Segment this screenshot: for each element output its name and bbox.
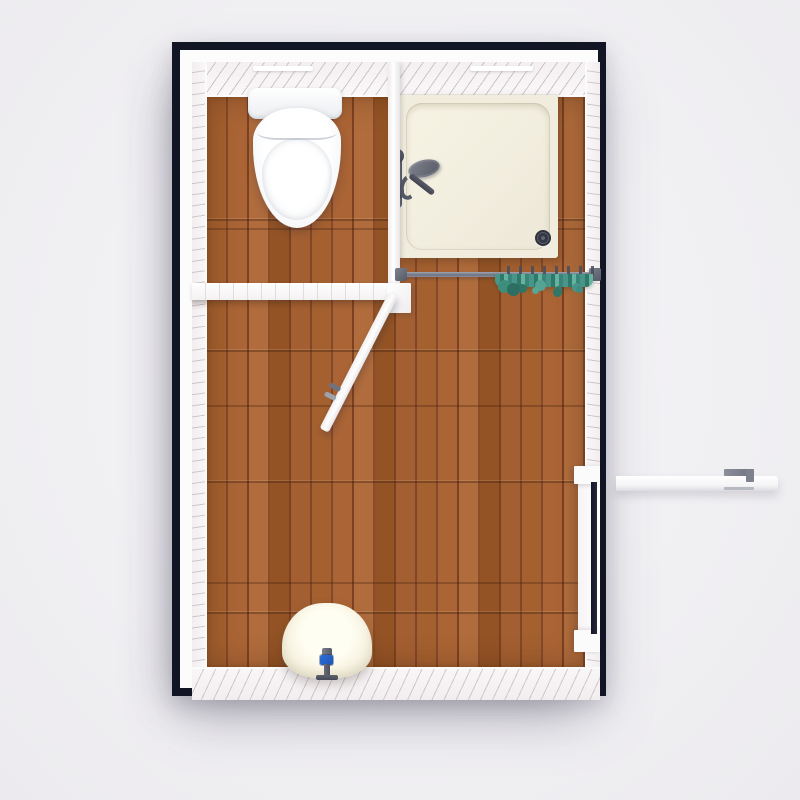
sink-faucet-base — [316, 675, 338, 680]
wall-face-bottom — [192, 667, 600, 700]
toilet-lid — [262, 138, 332, 220]
rod-mount-left — [395, 268, 407, 281]
curtain-ruffle — [507, 283, 520, 296]
bathroom-unit — [172, 42, 606, 696]
shower-faucet — [392, 148, 448, 214]
partition-wall-shadow — [192, 300, 397, 310]
ceiling-light-slit — [470, 66, 533, 71]
exterior-door-handle — [746, 469, 754, 482]
exterior-door-opening — [591, 482, 597, 634]
exterior-door-handle-shadow — [724, 487, 754, 490]
partition-wall-horizontal — [192, 283, 397, 300]
shower-curtain — [495, 274, 593, 287]
floor-plan-render — [0, 0, 800, 800]
wall-face-left — [192, 62, 207, 700]
shower-drain — [535, 230, 551, 246]
exterior-door-panel — [616, 476, 778, 491]
partition-wall-vertical — [388, 62, 400, 300]
exterior-door-frame — [578, 468, 600, 650]
ceiling-light-slit — [253, 66, 313, 71]
